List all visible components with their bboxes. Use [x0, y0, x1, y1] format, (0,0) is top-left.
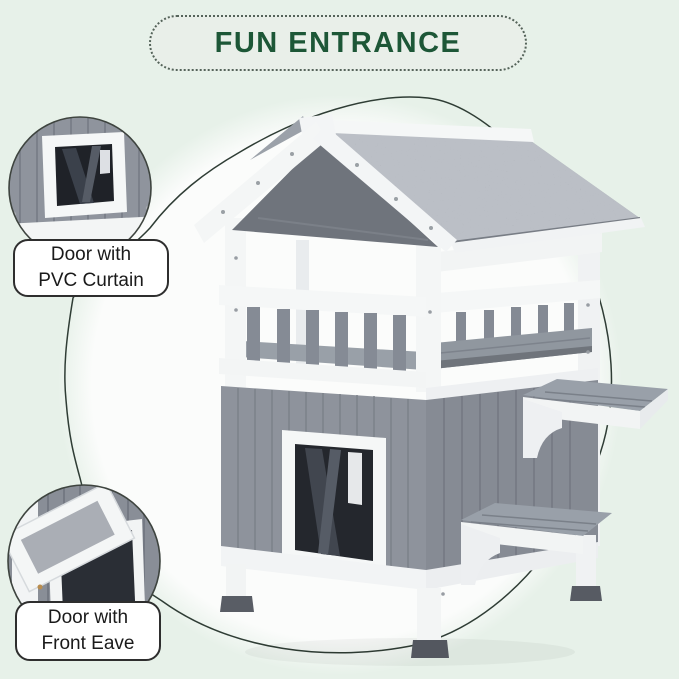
ground-shadow	[245, 638, 575, 666]
back-right-foot	[570, 586, 602, 601]
callout-label-line: Door with	[48, 605, 128, 631]
section-title: FUN ENTRANCE	[215, 27, 462, 60]
callout-label-line: Front Eave	[42, 631, 135, 657]
callout-label-pvc-curtain: Door with PVC Curtain	[13, 239, 169, 297]
product-feature-card: FUN ENTRANCE Door with PVC Curtain Door …	[0, 0, 679, 679]
front-door	[282, 430, 386, 573]
callout-label-line: Door with	[51, 242, 131, 268]
front-left-leg	[226, 564, 246, 600]
front-right-post	[416, 244, 441, 392]
curtain-highlight	[348, 452, 362, 505]
front-left-foot	[220, 596, 254, 612]
product-illustration	[0, 0, 679, 679]
front-center-leg	[417, 588, 441, 644]
front-center-foot	[411, 640, 449, 658]
callout-label-front-eave: Door with Front Eave	[15, 601, 161, 661]
callout-label-line: PVC Curtain	[38, 268, 144, 294]
hinge-screw	[38, 585, 43, 590]
section-title-pill: FUN ENTRANCE	[149, 15, 527, 71]
